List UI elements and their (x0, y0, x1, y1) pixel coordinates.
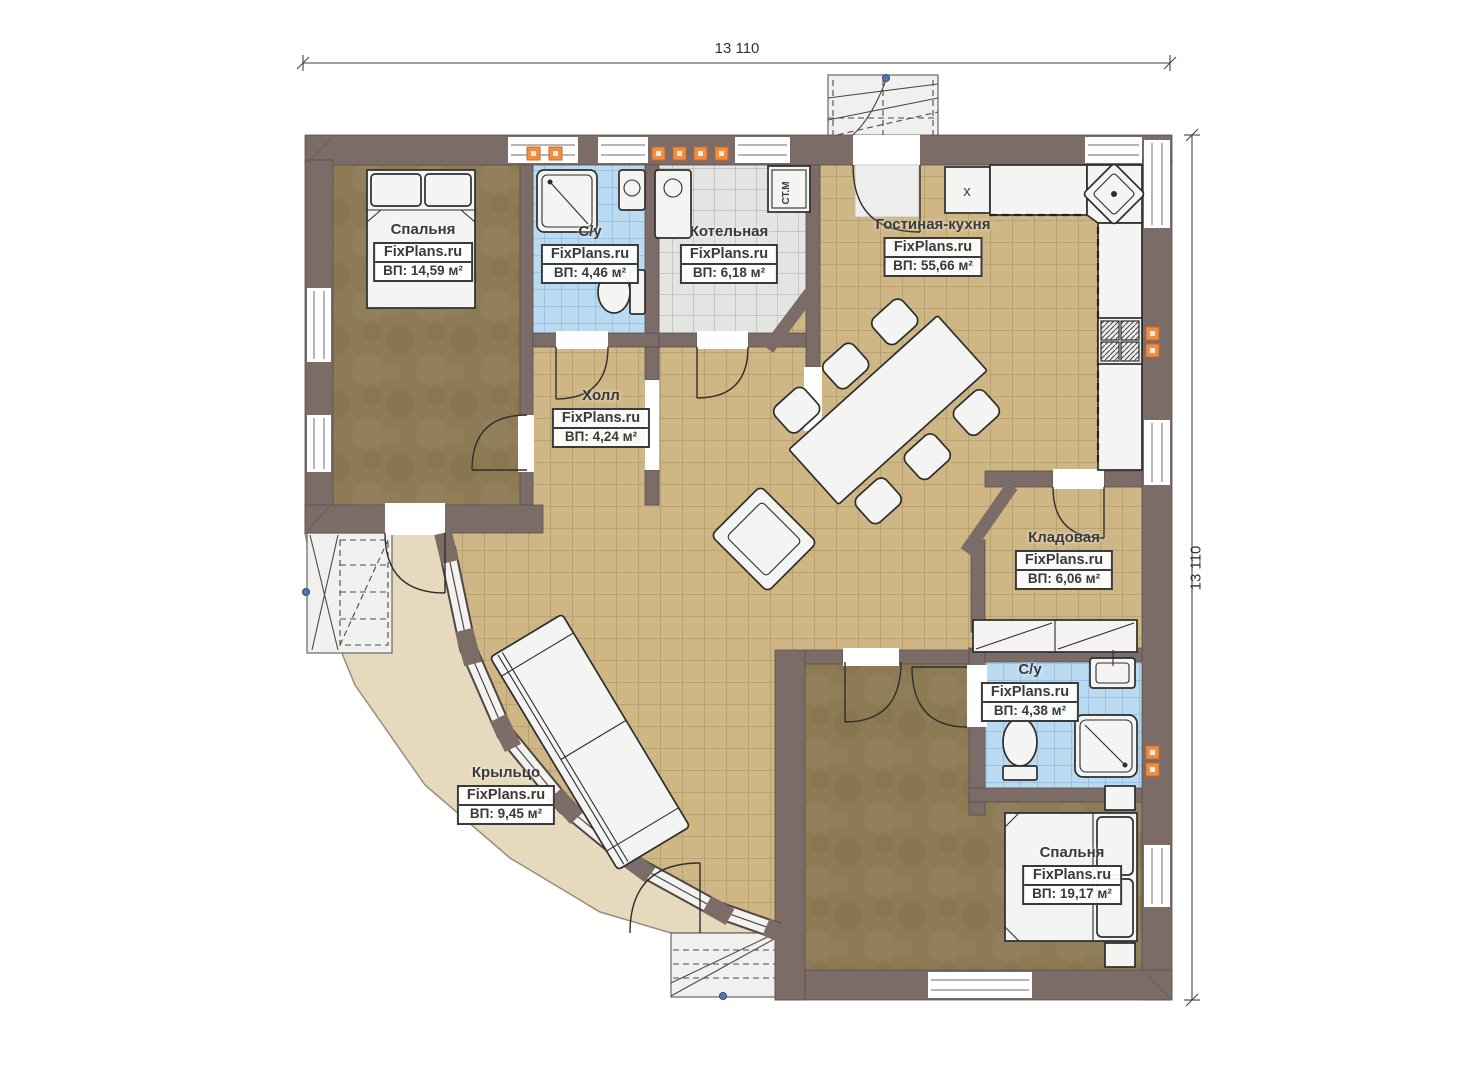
wall-storage-left (971, 540, 985, 632)
toilet-2 (1003, 718, 1037, 780)
washing-machine-label: СТ.М (781, 181, 792, 204)
room-label-living-kitchen: Гостиная-кухня FixPlans.ru ВП: 55,66 м² (876, 217, 991, 277)
room-brand: FixPlans.ru (885, 239, 981, 259)
room-area: ВП: 19,17 м² (1024, 886, 1120, 903)
room-label-bedroom-2: Спальня FixPlans.ru ВП: 19,17 м² (1022, 845, 1122, 905)
wardrobe (973, 620, 1137, 652)
top-entrance-stairs (828, 75, 938, 138)
room-info-box: FixPlans.ru ВП: 55,66 м² (883, 237, 983, 278)
floor-plan-drawing: СТ.М x (0, 0, 1473, 1080)
window (598, 137, 648, 163)
window (307, 288, 331, 362)
window (735, 137, 790, 163)
wall-bedroom2-top (897, 650, 969, 664)
room-brand: FixPlans.ru (1024, 867, 1120, 887)
dimension-top-label: 13 110 (715, 40, 760, 57)
room-info-box: FixPlans.ru ВП: 4,24 м² (552, 408, 650, 449)
room-info-box: FixPlans.ru ВП: 6,18 м² (680, 244, 778, 285)
room-area: ВП: 55,66 м² (885, 258, 981, 275)
room-label-bathroom-2: С/у FixPlans.ru ВП: 4,38 м² (981, 662, 1079, 722)
room-area: ВП: 6,18 м² (682, 265, 776, 282)
wall-storage-top (985, 471, 1053, 487)
wall-hall-corridor (645, 347, 659, 380)
room-area: ВП: 14,59 м² (375, 263, 471, 280)
room-brand: FixPlans.ru (375, 244, 471, 264)
room-info-box: FixPlans.ru ВП: 4,38 м² (981, 682, 1079, 723)
kitchen-appliance-label: x (963, 183, 971, 200)
room-info-box: FixPlans.ru ВП: 9,45 м² (457, 785, 555, 826)
room-brand: FixPlans.ru (1017, 552, 1111, 572)
kitchen-stove (1098, 318, 1142, 364)
floor-plan-canvas: СТ.М x 13 110 13 110 Спальня FixPlans.ru… (0, 0, 1473, 1080)
room-brand: FixPlans.ru (682, 246, 776, 266)
room-name: Котельная (680, 224, 778, 241)
window (928, 972, 1032, 998)
wall-storage-top (1104, 471, 1142, 487)
room-area: ВП: 4,38 м² (983, 703, 1077, 720)
room-area: ВП: 9,45 м² (459, 806, 553, 823)
room-label-porch: Крыльцо FixPlans.ru ВП: 9,45 м² (457, 765, 555, 825)
room-name: Спальня (1022, 845, 1122, 862)
room-brand: FixPlans.ru (554, 410, 648, 430)
room-info-box: FixPlans.ru ВП: 19,17 м² (1022, 865, 1122, 906)
left-porch-stairs (303, 533, 393, 653)
room-name: Крыльцо (457, 765, 555, 782)
room-name: Кладовая (1015, 530, 1113, 547)
wall-hall-corridor (645, 470, 659, 505)
dimension-right-label: 13 110 (1188, 546, 1205, 591)
door-gap-bathroom1 (556, 331, 608, 349)
door-gap-bedroom1 (518, 415, 534, 472)
door-gap-storage (1053, 469, 1104, 489)
stair-walkline-marker (303, 589, 310, 596)
window (1085, 137, 1142, 163)
room-name: Гостиная-кухня (876, 217, 991, 234)
room-info-box: FixPlans.ru ВП: 6,06 м² (1015, 550, 1113, 591)
room-label-bedroom-1: Спальня FixPlans.ru ВП: 14,59 м² (373, 222, 473, 282)
wall-bedroom2-top (805, 650, 843, 664)
room-brand: FixPlans.ru (459, 787, 553, 807)
entrance-door-gap (853, 135, 920, 165)
room-brand: FixPlans.ru (543, 246, 637, 266)
stair-walkline-marker (883, 75, 890, 82)
room-label-storage: Кладовая FixPlans.ru ВП: 6,06 м² (1015, 530, 1113, 590)
room-info-box: FixPlans.ru ВП: 14,59 м² (373, 242, 473, 283)
room-label-boiler-room: Котельная FixPlans.ru ВП: 6,18 м² (680, 224, 778, 284)
room-area: ВП: 4,24 м² (554, 429, 648, 446)
door-gap-boiler (697, 331, 748, 349)
room-name: Спальня (373, 222, 473, 239)
bottom-porch-stairs (671, 933, 778, 1000)
door-gap-porch (385, 503, 445, 535)
room-label-hall: Холл FixPlans.ru ВП: 4,24 м² (552, 388, 650, 448)
room-area: ВП: 4,46 м² (543, 265, 637, 282)
door-gap-bedroom2 (843, 648, 899, 666)
window (508, 137, 578, 163)
room-name: С/у (541, 224, 639, 241)
wall-boiler-bottom (659, 333, 697, 347)
nightstand (1105, 943, 1135, 967)
room-name: Холл (552, 388, 650, 405)
window (1144, 420, 1170, 485)
window (307, 415, 331, 472)
wall-bedroom2-left (775, 650, 805, 1000)
window (1144, 845, 1170, 907)
sink-1 (619, 170, 645, 210)
room-brand: FixPlans.ru (983, 684, 1077, 704)
room-info-box: FixPlans.ru ВП: 4,46 м² (541, 244, 639, 285)
room-area: ВП: 6,06 м² (1017, 571, 1111, 588)
window (1144, 140, 1170, 228)
nightstand (1105, 786, 1135, 810)
room-label-bathroom-1: С/у FixPlans.ru ВП: 4,46 м² (541, 224, 639, 284)
stair-walkline-marker (720, 993, 727, 1000)
shower-2 (1075, 715, 1137, 777)
room-name: С/у (981, 662, 1079, 679)
